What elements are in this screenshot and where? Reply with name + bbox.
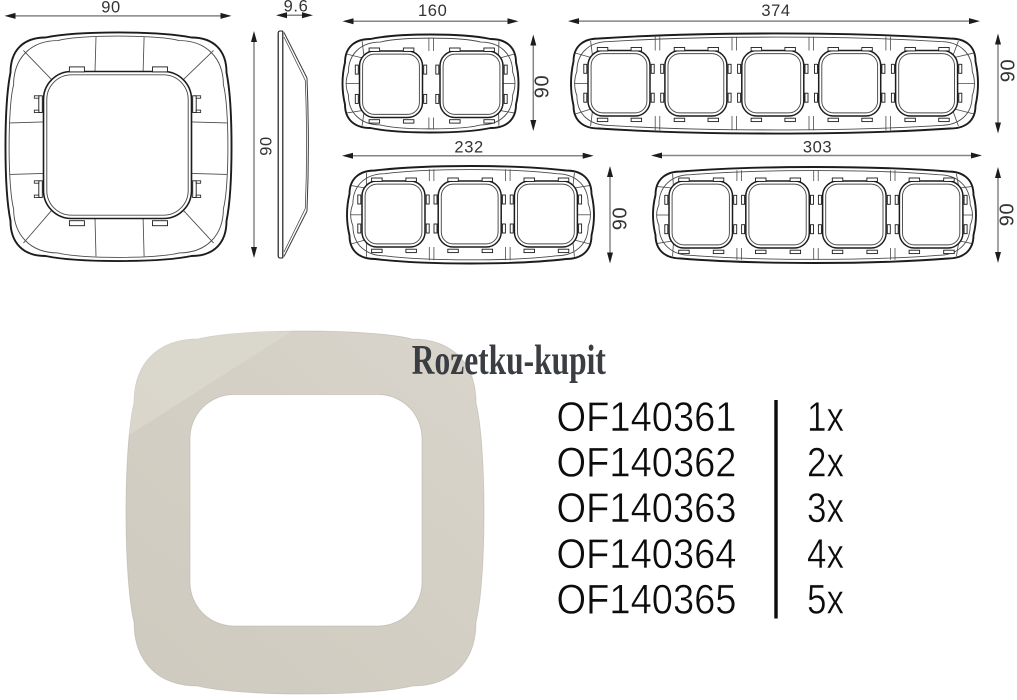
svg-text:2x: 2x (807, 439, 844, 486)
svg-text:90: 90 (610, 207, 632, 230)
svg-text:90: 90 (101, 0, 121, 16)
svg-text:5x: 5x (807, 575, 844, 622)
svg-text:90: 90 (997, 203, 1017, 226)
svg-text:90: 90 (998, 59, 1017, 82)
svg-text:OF140361: OF140361 (557, 393, 737, 440)
svg-text:OF140365: OF140365 (557, 575, 737, 622)
svg-text:3x: 3x (807, 484, 844, 531)
svg-text:374: 374 (761, 2, 790, 20)
svg-text:90: 90 (532, 75, 554, 98)
svg-text:160: 160 (418, 2, 447, 20)
svg-text:OF140362: OF140362 (557, 439, 737, 486)
svg-text:OF140363: OF140363 (557, 484, 737, 531)
svg-text:OF140364: OF140364 (557, 530, 737, 577)
svg-text:4x: 4x (807, 530, 844, 577)
svg-text:90: 90 (258, 136, 276, 156)
svg-text:303: 303 (803, 138, 832, 156)
svg-text:1x: 1x (807, 393, 844, 440)
svg-text:9.6: 9.6 (284, 0, 309, 16)
svg-text:232: 232 (454, 138, 483, 156)
svg-text:Rozetku-kupit: Rozetku-kupit (412, 337, 606, 384)
